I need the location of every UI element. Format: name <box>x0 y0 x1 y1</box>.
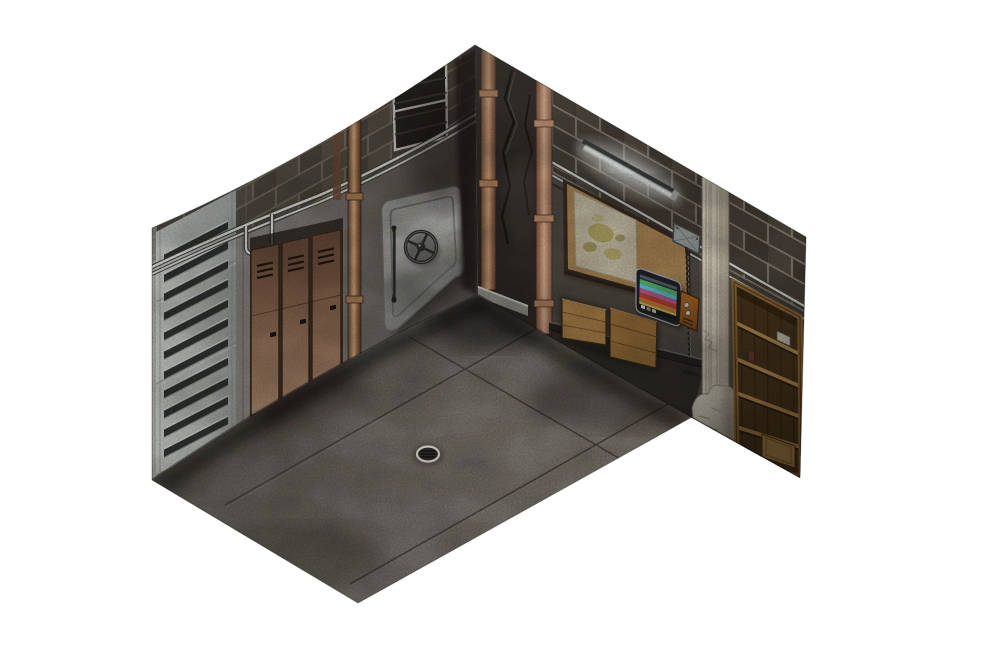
bunker-room-svg: Isometric bunker corner room map tile Cu… <box>0 0 1000 647</box>
isometric-room-illustration: Isometric bunker corner room map tile Cu… <box>0 0 1000 647</box>
floor-drain <box>412 444 444 466</box>
